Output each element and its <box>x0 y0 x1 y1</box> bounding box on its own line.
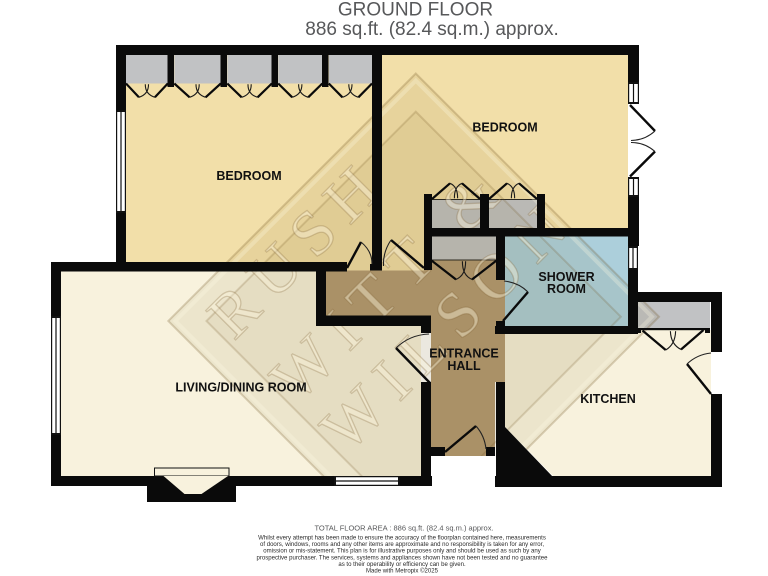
svg-text:886 sq.ft. (82.4 sq.m.) approx: 886 sq.ft. (82.4 sq.m.) approx. <box>305 19 558 40</box>
svg-text:KITCHEN: KITCHEN <box>580 392 636 406</box>
svg-text:BEDROOM: BEDROOM <box>216 169 281 183</box>
svg-text:Made with Metropix ©2025: Made with Metropix ©2025 <box>366 568 439 575</box>
svg-text:ROOM: ROOM <box>547 282 586 296</box>
svg-text:HALL: HALL <box>447 359 481 373</box>
svg-text:Whilst every attempt has been: Whilst every attempt has been made to en… <box>258 535 546 541</box>
svg-text:prospective purchaser. The ser: prospective purchaser. The services, sys… <box>257 555 549 561</box>
svg-text:as to their operability or eff: as to their operability or efficiency ca… <box>338 562 466 568</box>
svg-text:omission or mis-statement. Thi: omission or mis-statement. This plan is … <box>263 549 541 555</box>
svg-text:LIVING/DINING ROOM: LIVING/DINING ROOM <box>175 380 306 394</box>
svg-text:BEDROOM: BEDROOM <box>472 121 537 135</box>
svg-text:of doors, windows, rooms and a: of doors, windows, rooms and any other i… <box>260 542 544 548</box>
svg-text:TOTAL FLOOR AREA : 886 sq.ft.: TOTAL FLOOR AREA : 886 sq.ft. (82.4 sq.m… <box>314 523 493 532</box>
svg-text:GROUND FLOOR: GROUND FLOOR <box>338 0 493 21</box>
